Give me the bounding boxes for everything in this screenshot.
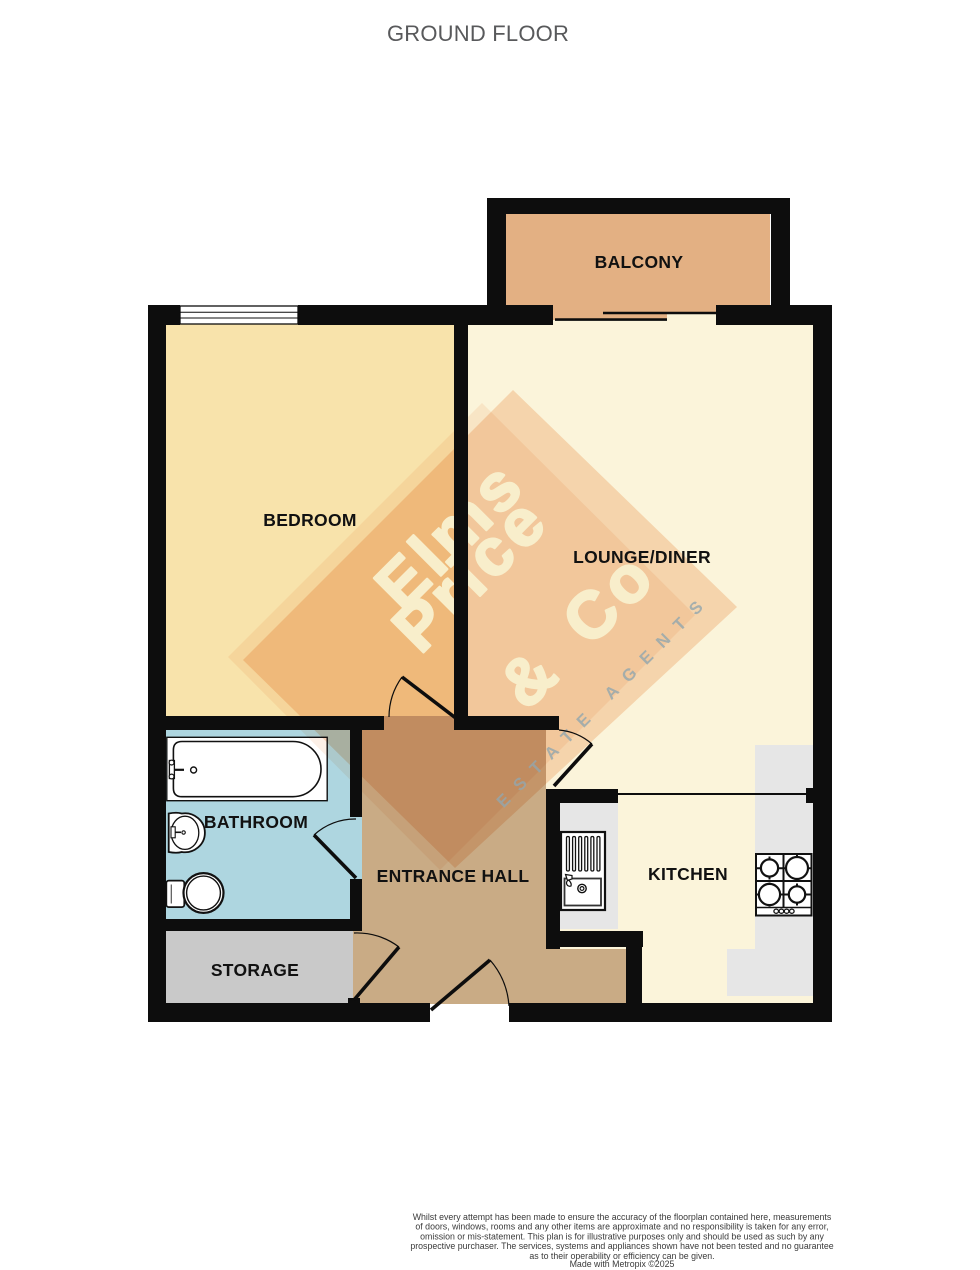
svg-text:omission or mis-statement. Thi: omission or mis-statement. This plan is … (420, 1231, 824, 1241)
svg-text:of doors, windows, rooms and a: of doors, windows, rooms and any other i… (415, 1222, 828, 1232)
svg-text:prospective purchaser. The ser: prospective purchaser. The services, sys… (410, 1241, 833, 1251)
svg-text:Whilst every attempt has been: Whilst every attempt has been made to en… (413, 1212, 832, 1222)
svg-text:GROUND FLOOR: GROUND FLOOR (387, 21, 569, 46)
svg-text:BALCONY: BALCONY (595, 252, 684, 272)
svg-text:ENTRANCE HALL: ENTRANCE HALL (377, 866, 530, 886)
svg-text:BATHROOM: BATHROOM (204, 812, 308, 832)
svg-text:KITCHEN: KITCHEN (648, 864, 728, 884)
svg-text:BEDROOM: BEDROOM (263, 510, 357, 530)
svg-text:Made with Metropix ©2025: Made with Metropix ©2025 (570, 1259, 675, 1269)
svg-text:LOUNGE/DINER: LOUNGE/DINER (573, 547, 711, 567)
svg-text:STORAGE: STORAGE (211, 960, 299, 980)
